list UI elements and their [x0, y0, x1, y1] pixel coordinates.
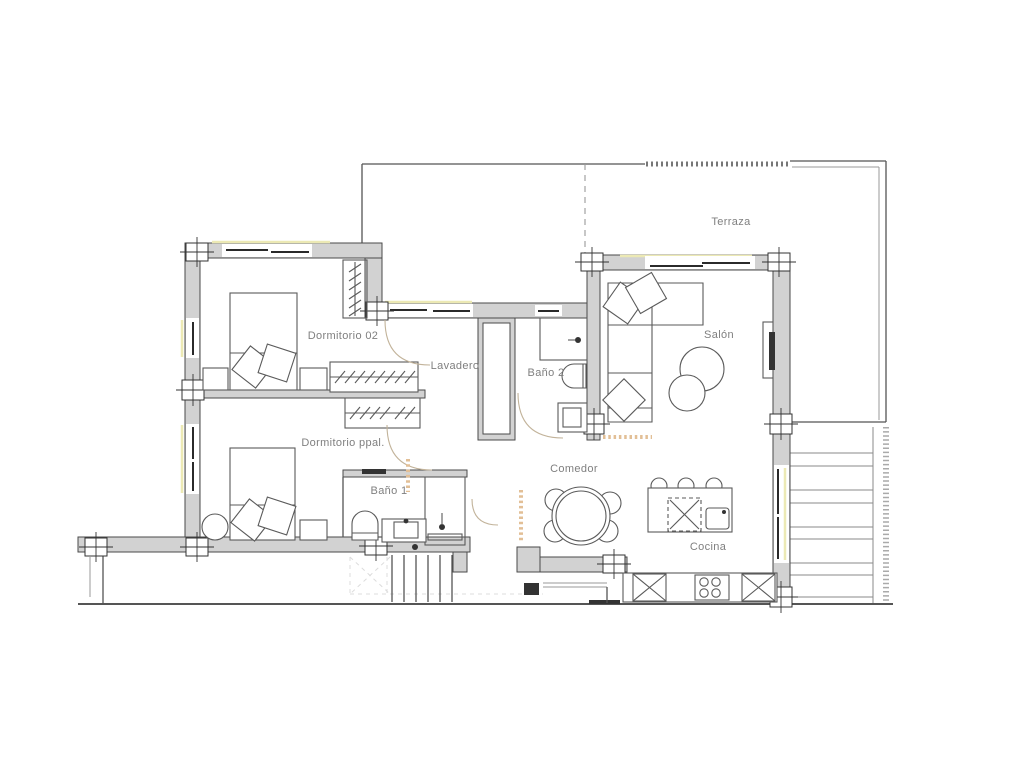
threshold: [589, 600, 620, 604]
floor-plan: Terraza Dormitorio 02 Lavadero Baño 2 Sa…: [0, 0, 1024, 768]
exterior-steps-right: [790, 427, 886, 603]
pilaster: [764, 408, 798, 440]
door-arc-bedroom2: [385, 320, 430, 365]
wall-bottom-step: [453, 552, 467, 572]
front-door-leaf: [524, 583, 539, 595]
shower: [425, 477, 465, 545]
dining-furniture: [544, 487, 621, 545]
door-arc-hall: [472, 499, 498, 525]
door-arc-bath2: [518, 393, 563, 438]
island: [648, 488, 732, 532]
corner-closet: [343, 260, 367, 318]
coffee-table: [669, 375, 705, 411]
shower-head: [575, 337, 581, 343]
window-kitchen-right: [774, 465, 789, 563]
vanity: [558, 403, 587, 432]
nightstand: [300, 520, 327, 540]
door-arc-bath1: [387, 425, 432, 470]
room-label-bano-2: Baño 2: [528, 367, 565, 379]
wall-living-right: [773, 255, 790, 422]
laundry-cabinet: [478, 318, 515, 440]
room-label-bano-1: Baño 1: [371, 485, 408, 497]
floor-plan-page: Terraza Dormitorio 02 Lavadero Baño 2 Sa…: [0, 0, 1024, 768]
tv-screen: [769, 332, 775, 370]
room-label-comedor: Comedor: [550, 463, 598, 475]
bath1-top-wall: [343, 470, 467, 477]
bath1-door-leaf: [362, 469, 386, 474]
room-label-lavadero: Lavadero: [431, 360, 480, 372]
toilet: [562, 364, 586, 388]
dining-table: [552, 487, 610, 545]
nightstand: [203, 368, 228, 390]
side-table: [202, 514, 228, 540]
wardrobe: [345, 398, 420, 428]
faucet: [404, 519, 409, 524]
toilet: [352, 511, 378, 540]
pilaster: [762, 247, 796, 277]
entry-steps: [392, 555, 452, 602]
room-label-salon: Salón: [704, 329, 734, 341]
room-label-dormitorio-02: Dormitorio 02: [308, 330, 379, 342]
nightstand: [300, 368, 327, 390]
wall-bath2-living: [587, 255, 600, 440]
pilaster: [575, 247, 609, 277]
room-label-terraza: Terraza: [711, 216, 751, 228]
wardrobe: [330, 362, 418, 392]
faucet: [722, 510, 726, 514]
wall-entry-a: [517, 547, 540, 572]
room-label-dormitorio-ppal: Dormitorio ppal.: [301, 437, 384, 449]
door-pivot: [412, 544, 418, 550]
room-label-cocina: Cocina: [690, 541, 727, 553]
kitchen-counter: [623, 573, 777, 602]
hidden-lines-below: [350, 557, 543, 594]
living-room-furniture: [603, 273, 724, 422]
